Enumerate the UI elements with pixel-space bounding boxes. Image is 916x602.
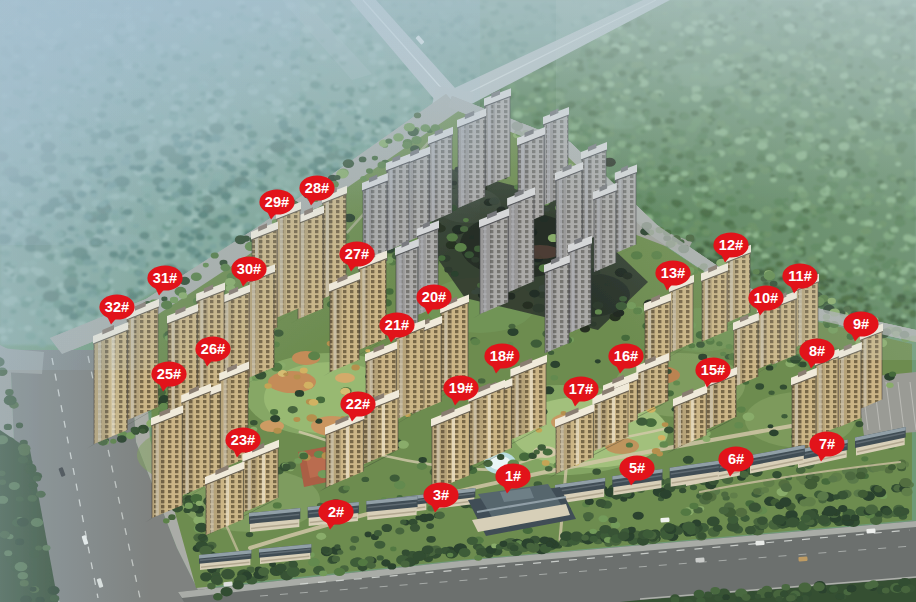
svg-text:29#: 29# bbox=[265, 194, 289, 210]
svg-text:31#: 31# bbox=[153, 270, 177, 286]
svg-text:3#: 3# bbox=[433, 487, 449, 503]
svg-text:17#: 17# bbox=[569, 381, 593, 397]
svg-text:1#: 1# bbox=[505, 468, 521, 484]
svg-text:9#: 9# bbox=[853, 316, 869, 332]
svg-text:13#: 13# bbox=[661, 265, 685, 281]
svg-text:28#: 28# bbox=[305, 180, 329, 196]
svg-text:25#: 25# bbox=[157, 366, 181, 382]
svg-text:11#: 11# bbox=[788, 268, 812, 284]
svg-text:19#: 19# bbox=[449, 380, 473, 396]
svg-text:5#: 5# bbox=[629, 460, 645, 476]
svg-text:6#: 6# bbox=[728, 451, 744, 467]
svg-text:15#: 15# bbox=[701, 362, 725, 378]
svg-text:10#: 10# bbox=[754, 290, 778, 306]
svg-text:22#: 22# bbox=[346, 396, 370, 412]
svg-text:21#: 21# bbox=[385, 317, 409, 333]
svg-text:32#: 32# bbox=[105, 299, 129, 315]
svg-text:23#: 23# bbox=[231, 432, 255, 448]
svg-text:27#: 27# bbox=[345, 246, 369, 262]
svg-text:7#: 7# bbox=[819, 436, 835, 452]
svg-text:2#: 2# bbox=[328, 504, 344, 520]
svg-text:18#: 18# bbox=[490, 348, 514, 364]
svg-text:8#: 8# bbox=[809, 343, 825, 359]
svg-text:20#: 20# bbox=[422, 289, 446, 305]
svg-text:30#: 30# bbox=[237, 261, 261, 277]
svg-text:26#: 26# bbox=[201, 341, 225, 357]
svg-text:16#: 16# bbox=[614, 348, 638, 364]
svg-text:12#: 12# bbox=[719, 237, 743, 253]
